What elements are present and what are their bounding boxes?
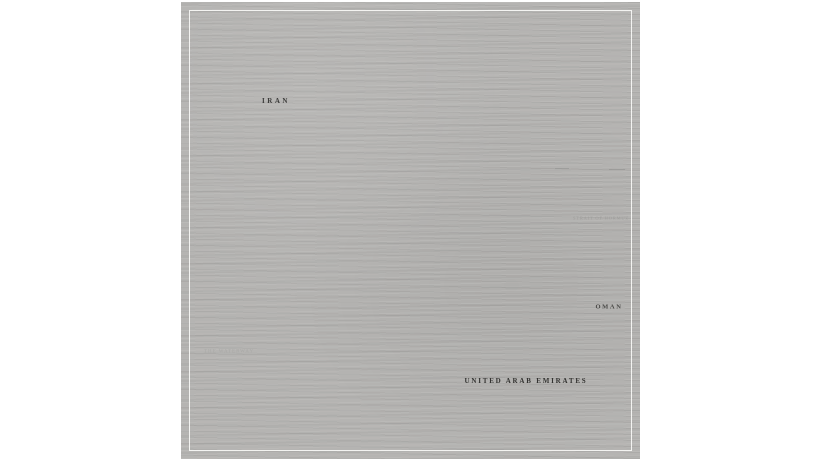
label-waterway: THE WATERWAY xyxy=(204,350,254,355)
page: IRAN OMAN UNITED ARAB EMIRATES THE WATER… xyxy=(0,0,820,461)
label-iran: IRAN xyxy=(262,97,290,105)
coast-mark xyxy=(555,168,569,169)
label-oman: OMAN xyxy=(596,304,623,311)
label-strait-of-hormuz: STRAIT OF HORMUZ xyxy=(573,216,629,221)
label-united-arab-emirates: UNITED ARAB EMIRATES xyxy=(465,377,588,385)
coast-mark xyxy=(609,169,625,170)
map-artwork: IRAN OMAN UNITED ARAB EMIRATES THE WATER… xyxy=(181,2,640,459)
artwork-svg xyxy=(181,2,640,459)
